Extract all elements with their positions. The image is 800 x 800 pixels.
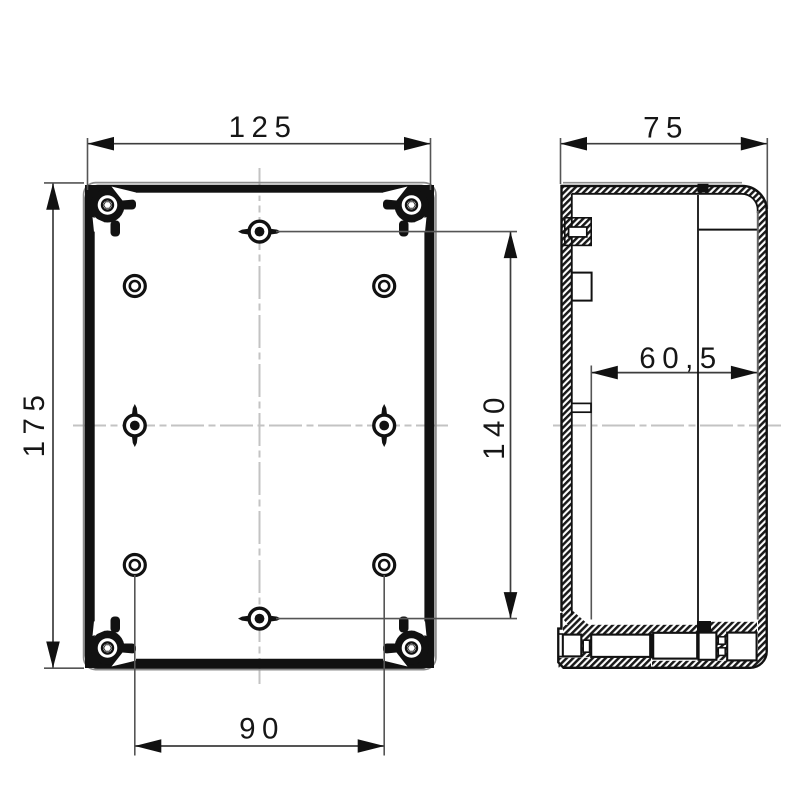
svg-text:60,5: 60,5: [639, 342, 722, 375]
svg-text:175: 175: [18, 389, 51, 458]
svg-text:140: 140: [478, 391, 511, 460]
svg-text:125: 125: [229, 111, 298, 144]
svg-text:75: 75: [643, 112, 689, 145]
svg-text:90: 90: [239, 713, 285, 746]
